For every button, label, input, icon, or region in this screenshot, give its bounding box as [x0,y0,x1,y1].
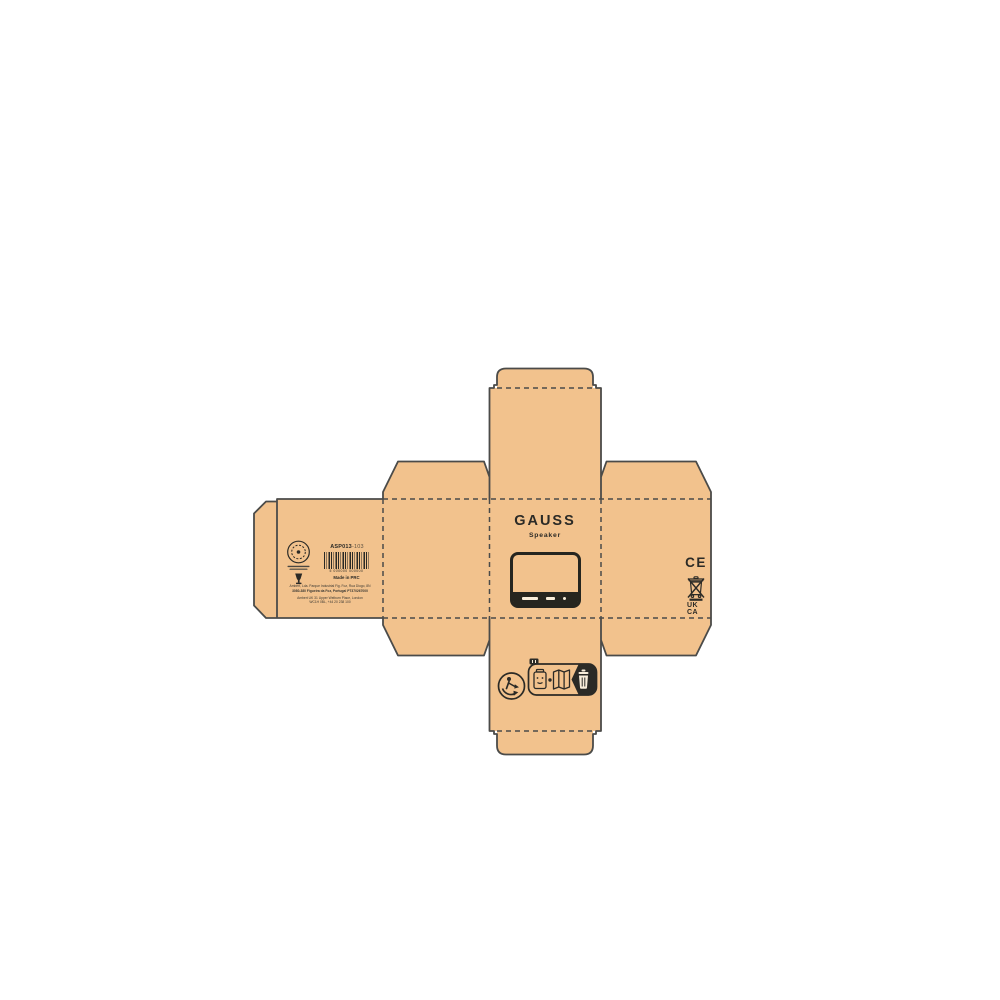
packaging-dieline-canvas: ASP013-103 5 000000 000000 Made in PRC A… [0,0,1000,1000]
packaging-box-icon [534,670,546,689]
uk-representative-address: Ambert UK 31 Upper Welburn Place, London… [270,596,390,605]
maker-line-2: 3080-380 Figueira da Foz, Portugal PT370… [270,589,390,594]
brand-name: GAUSS [490,513,601,529]
right-dust-flap-top-shape [601,462,711,500]
speaker-device-icon [510,552,581,608]
right-dust-flap-bottom-shape [601,618,711,656]
ean-barcode-icon [324,552,369,569]
recycling-bin-icon [578,670,588,689]
front-panel-content: GAUSS Speaker [490,499,601,618]
weee-crossed-bin-icon [687,576,705,601]
speaker-grille-mark [522,597,538,600]
recycling-glyph-icon [295,574,302,585]
sku-variant: -103 [352,544,364,550]
recycling-info-cluster [490,618,601,731]
speaker-led-dot [563,597,566,600]
left-dust-flap-top-shape [383,462,490,500]
ukca-line-uk: UK [687,602,708,609]
speaker-grille-mark [546,597,555,600]
made-in-label: Made in PRC [324,575,369,580]
manufacturer-address: Ambert, Lda. Parque Industrial Fig. Foz,… [270,584,390,593]
back-panel-content: ASP013-103 5 000000 000000 Made in PRC A… [277,499,383,618]
speaker-control-band [513,592,578,605]
sku-label: ASP013-103 [301,544,393,550]
separator-dot [548,678,551,681]
product-name: Speaker [490,532,601,539]
bottom-tuck-tab-shape [497,731,593,755]
top-panel-shape [490,388,602,499]
left-side-panel-shape [383,499,490,618]
ce-mark: CE [683,555,709,570]
sorting-info-label [528,659,596,696]
right-side-panel-content: CE UK CA [601,499,711,618]
bottom-panel-content [490,618,601,731]
ukca-mark: UK CA [684,602,708,616]
top-tuck-tab-shape [497,369,593,389]
barcode-digits: 5 000000 000000 [321,569,372,573]
ukca-line-ca: CA [687,609,708,616]
leaflet-icon [553,670,569,689]
sku-code: ASP013 [330,544,352,550]
maker-line-4: WC1H 0BL, +44 20 238 100 [270,600,390,605]
left-dust-flap-bottom-shape [383,618,490,656]
triman-recycling-icon [498,673,524,699]
